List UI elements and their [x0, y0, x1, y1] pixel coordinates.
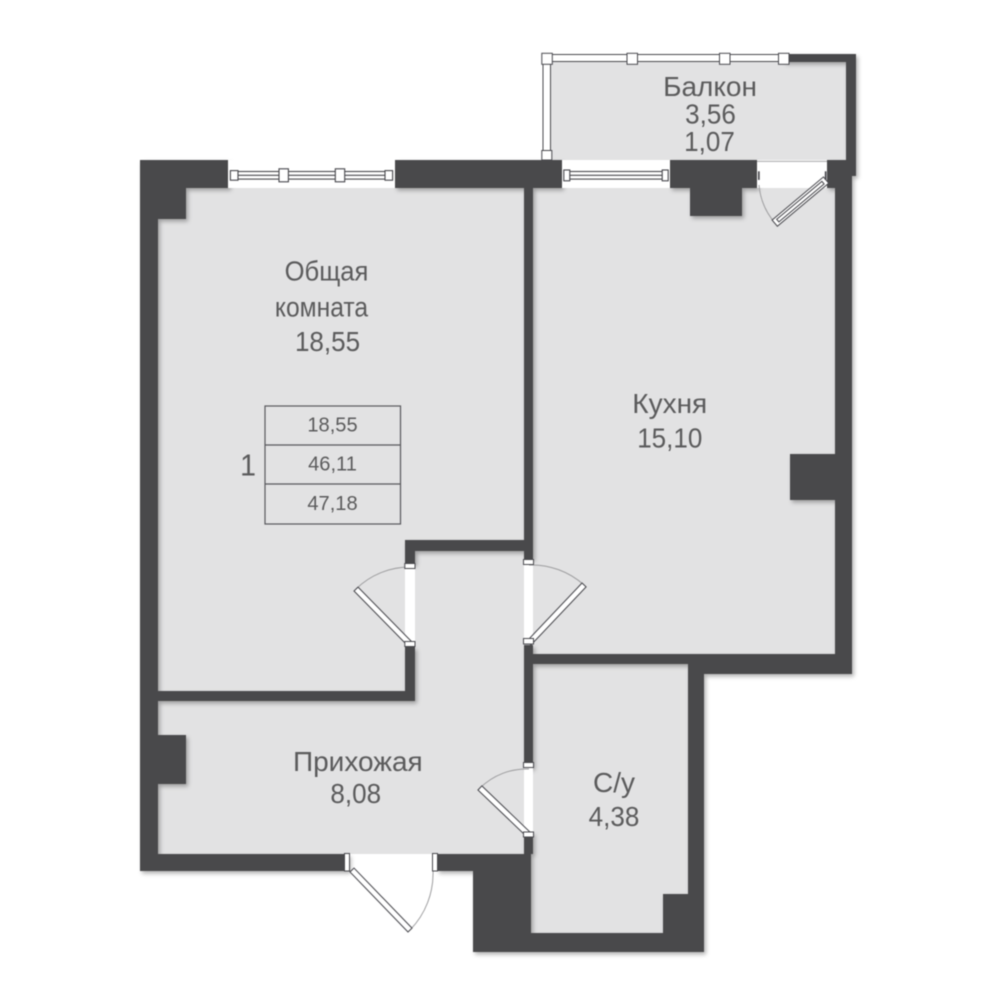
svg-text:18,55: 18,55	[295, 326, 360, 357]
svg-text:4,38: 4,38	[589, 801, 640, 832]
svg-text:комната: комната	[275, 291, 368, 323]
svg-text:Общая: Общая	[285, 255, 369, 286]
svg-text:3,56: 3,56	[685, 99, 736, 130]
svg-text:С/у: С/у	[593, 767, 635, 798]
svg-text:1,07: 1,07	[684, 126, 735, 157]
svg-text:Кухня: Кухня	[632, 388, 707, 419]
svg-text:47,18: 47,18	[307, 493, 357, 515]
svg-text:Балкон: Балкон	[663, 71, 757, 102]
svg-text:1: 1	[240, 449, 256, 483]
svg-text:46,11: 46,11	[308, 453, 357, 475]
svg-text:8,08: 8,08	[330, 778, 381, 809]
svg-text:15,10: 15,10	[637, 423, 702, 454]
svg-text:Прихожая: Прихожая	[293, 746, 423, 777]
svg-text:18,55: 18,55	[307, 414, 357, 436]
